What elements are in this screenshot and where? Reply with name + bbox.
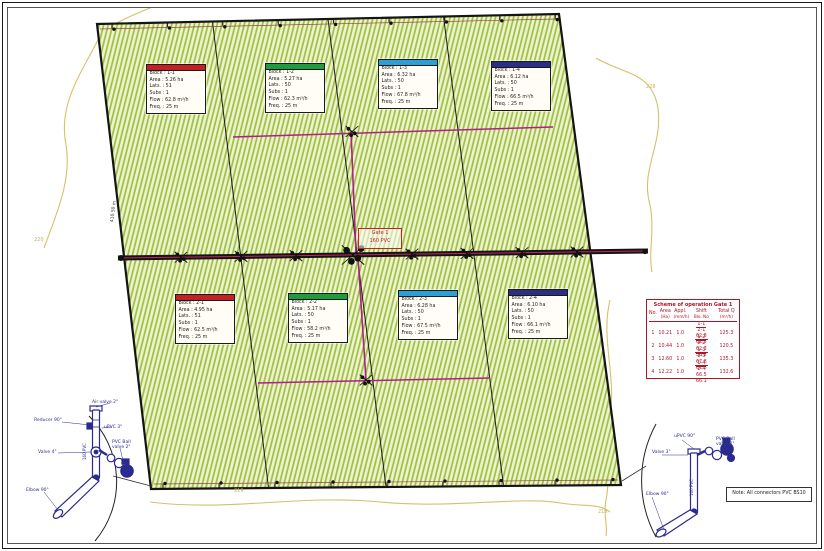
- block-info-line: Block : 2-3: [399, 297, 457, 304]
- label-valve-left: Valve 4": [38, 451, 57, 456]
- table-title: Scheme of operation Gate 1: [649, 302, 737, 309]
- label-ball-valve-left: PVC Ball valve 2": [112, 441, 138, 451]
- contour-elevation-label: 220: [34, 237, 44, 243]
- callout-leader-left: [113, 476, 151, 486]
- block-info-box-1-3: Block : 1-3 Area : 6.32 ha Lats. : 50 Su…: [378, 59, 438, 109]
- label-elbow-left: Elbow 90°: [26, 489, 49, 494]
- block-info-line: Subs : 1: [399, 317, 457, 324]
- block-info-line: Freq. : 25 m: [266, 104, 324, 111]
- block-info-line: Block : 2-2: [289, 300, 347, 307]
- block-info-line: Flow : 67.5 m³/h: [399, 324, 457, 331]
- col-header-area: Area(Ha): [657, 309, 674, 320]
- block-info-box-2-3: Block : 2-3 Area : 6.28 ha Lats. : 50 Su…: [398, 290, 458, 340]
- gate-label-line1: Gate 1: [359, 229, 401, 237]
- label-air-valve-left: Air valve 2": [92, 401, 118, 406]
- block-info-line: Subs : 1: [176, 321, 234, 328]
- col-header-total: Total Q(m³/h): [716, 309, 737, 320]
- block-info-line: Freq. : 25 m: [492, 102, 550, 109]
- table-header-row: No. Area(Ha) Appl.(mm/h) ShiftBlo. No To…: [649, 309, 737, 322]
- block-info-line: Block : 2-4: [509, 296, 567, 303]
- table-row: 110.211.0 1-12-162.862.5 125.3: [649, 322, 737, 335]
- block-info-line: Subs : 1: [509, 316, 567, 323]
- label-upvc-right: uPVC 90°: [674, 435, 695, 440]
- block-info-line: Flow : 66.5 m³/h: [492, 95, 550, 102]
- block-info-line: Block : 1-4: [492, 68, 550, 75]
- label-reducer-left: Reducer 90°: [28, 419, 62, 424]
- table-row: 312.601.0 1-32-367.867.5 135.3: [649, 348, 737, 361]
- label-upvc-left: uPVC 3": [104, 426, 122, 431]
- scheme-of-operation-table: Scheme of operation Gate 1 No. Area(Ha) …: [646, 299, 740, 379]
- block-info-box-2-1: Block : 2-1 Area : 4.95 ha Lats. : 51 Su…: [175, 294, 235, 344]
- block-info-box-2-4: Block : 2-4 Area : 6.10 ha Lats. : 50 Su…: [508, 289, 568, 339]
- block-info-line: Flow : 62.8 m³/h: [147, 98, 205, 105]
- block-info-line: Freq. : 25 m: [289, 334, 347, 341]
- block-info-line: Block : 1-2: [266, 70, 324, 77]
- block-info-line: Flow : 62.5 m³/h: [176, 328, 234, 335]
- block-info-line: Block : 1-1: [147, 71, 205, 78]
- irrigation-plan-sheet: Block : 1-1 Area : 5.26 ha Lats. : 51 Su…: [0, 0, 824, 551]
- table-row: 412.221.0 1-42-466.566.1 132.6: [649, 361, 737, 374]
- block-info-line: Subs : 1: [266, 90, 324, 97]
- col-header-no: No.: [649, 311, 657, 317]
- label-ball-valve-right: PVC Ball valve 2": [716, 438, 742, 448]
- block-info-line: Subs : 1: [492, 88, 550, 95]
- label-pipe-size-right: 160 PVC: [690, 479, 695, 496]
- contour-elevation-label: 228: [646, 84, 656, 90]
- block-info-line: Freq. : 25 m: [379, 100, 437, 107]
- gate-label-line2: 160 PVC: [359, 237, 401, 245]
- block-info-line: Flow : 62.3 m³/h: [266, 97, 324, 104]
- label-pipe-size-left: 160 PVC: [83, 443, 88, 460]
- block-info-box-1-2: Block : 1-2 Area : 5.27 ha Lats. : 50 Su…: [265, 63, 325, 113]
- table-row: 210.441.0 1-22-262.358.2 120.5: [649, 335, 737, 348]
- block-info-line: Flow : 67.8 m³/h: [379, 93, 437, 100]
- block-info-line: Block : 2-1: [176, 301, 234, 308]
- contour-elevation-label: 219: [234, 488, 244, 494]
- gate-label-box: Gate 1 160 PVC: [358, 228, 402, 249]
- label-valve-right: Valve 3": [652, 451, 671, 456]
- block-info-line: Flow : 66.1 m³/h: [509, 323, 567, 330]
- label-elbow-right: Elbow 90°: [646, 493, 669, 498]
- contour-elevation-label: 218: [598, 509, 608, 515]
- block-info-line: Flow : 58.2 m³/h: [289, 327, 347, 334]
- block-info-line: Block : 1-3: [379, 66, 437, 73]
- block-info-line: Freq. : 25 m: [509, 330, 567, 337]
- col-header-appl: Appl.(mm/h): [674, 309, 687, 320]
- block-info-box-1-4: Block : 1-4 Area : 6.12 ha Lats. : 50 Su…: [491, 61, 551, 111]
- callout-leader-right: [622, 466, 646, 481]
- block-info-line: Subs : 1: [289, 320, 347, 327]
- note-box: Note: All connectors PVC BS10: [726, 487, 812, 502]
- col-header-shift: ShiftBlo. No: [687, 309, 716, 320]
- callout-circle-right: [642, 424, 656, 537]
- block-info-line: Freq. : 25 m: [176, 335, 234, 342]
- block-info-line: Subs : 1: [147, 91, 205, 98]
- block-info-line: Subs : 1: [379, 86, 437, 93]
- block-info-line: Freq. : 25 m: [399, 331, 457, 338]
- block-info-box-2-2: Block : 2-2 Area : 5.17 ha Lats. : 50 Su…: [288, 293, 348, 343]
- block-info-line: Freq. : 25 m: [147, 105, 205, 112]
- block-info-box-1-1: Block : 1-1 Area : 5.26 ha Lats. : 51 Su…: [146, 64, 206, 114]
